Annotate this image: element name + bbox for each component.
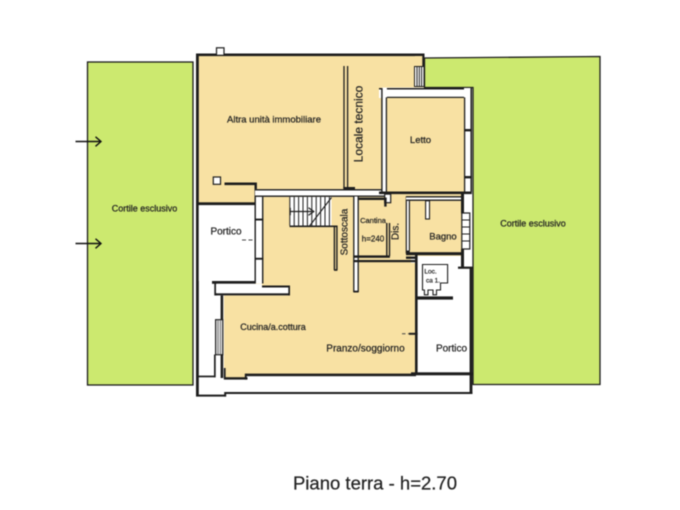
svg-text:Letto: Letto	[410, 135, 431, 146]
svg-text:Portico: Portico	[210, 227, 242, 238]
svg-text:Cortile esclusivo: Cortile esclusivo	[500, 219, 566, 229]
svg-text:Portico: Portico	[436, 344, 468, 355]
svg-text:Piano terra - h=2.70: Piano terra - h=2.70	[293, 473, 457, 494]
svg-text:Sottoscala: Sottoscala	[340, 208, 351, 255]
svg-text:Cantina: Cantina	[360, 216, 387, 225]
svg-text:Locale tecnico: Locale tecnico	[352, 85, 366, 162]
svg-text:Altra unità immobiliare: Altra unità immobiliare	[227, 115, 321, 126]
svg-text:Bagno: Bagno	[429, 232, 456, 243]
svg-text:Cucina/a.cottura: Cucina/a.cottura	[240, 322, 306, 332]
svg-text:Loc.: Loc.	[424, 269, 436, 276]
svg-text:h=240: h=240	[362, 235, 385, 244]
svg-text:Pranzo/soggiorno: Pranzo/soggiorno	[326, 344, 405, 355]
svg-text:ca 1.: ca 1.	[426, 278, 440, 285]
svg-text:Dis.: Dis.	[391, 223, 402, 240]
svg-text:Cortile esclusivo: Cortile esclusivo	[112, 204, 178, 214]
